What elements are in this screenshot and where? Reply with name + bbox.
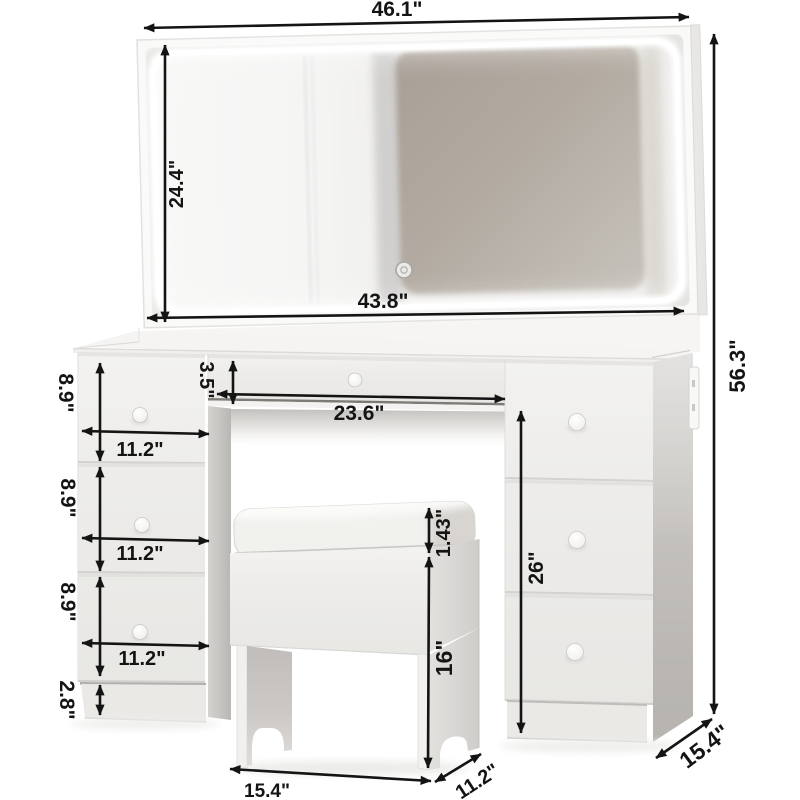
svg-text:46.1": 46.1"	[372, 0, 423, 21]
svg-text:11.2": 11.2"	[116, 439, 163, 461]
svg-text:11.2": 11.2"	[116, 543, 163, 565]
svg-text:56.3": 56.3"	[725, 339, 750, 392]
svg-text:1.43": 1.43"	[433, 509, 455, 557]
svg-text:24.4": 24.4"	[166, 160, 188, 208]
svg-text:15.4": 15.4"	[244, 781, 290, 800]
svg-text:26": 26"	[525, 551, 548, 584]
svg-text:2.8": 2.8"	[55, 680, 78, 719]
svg-text:8.9": 8.9"	[56, 478, 79, 517]
svg-text:23.6": 23.6"	[334, 402, 385, 425]
svg-text:43.8": 43.8"	[358, 290, 409, 313]
svg-text:8.9": 8.9"	[54, 373, 77, 412]
svg-text:11.2": 11.2"	[118, 648, 165, 670]
svg-text:16": 16"	[431, 640, 457, 677]
svg-text:8.9": 8.9"	[56, 582, 79, 621]
svg-text:3.5": 3.5"	[195, 361, 217, 398]
